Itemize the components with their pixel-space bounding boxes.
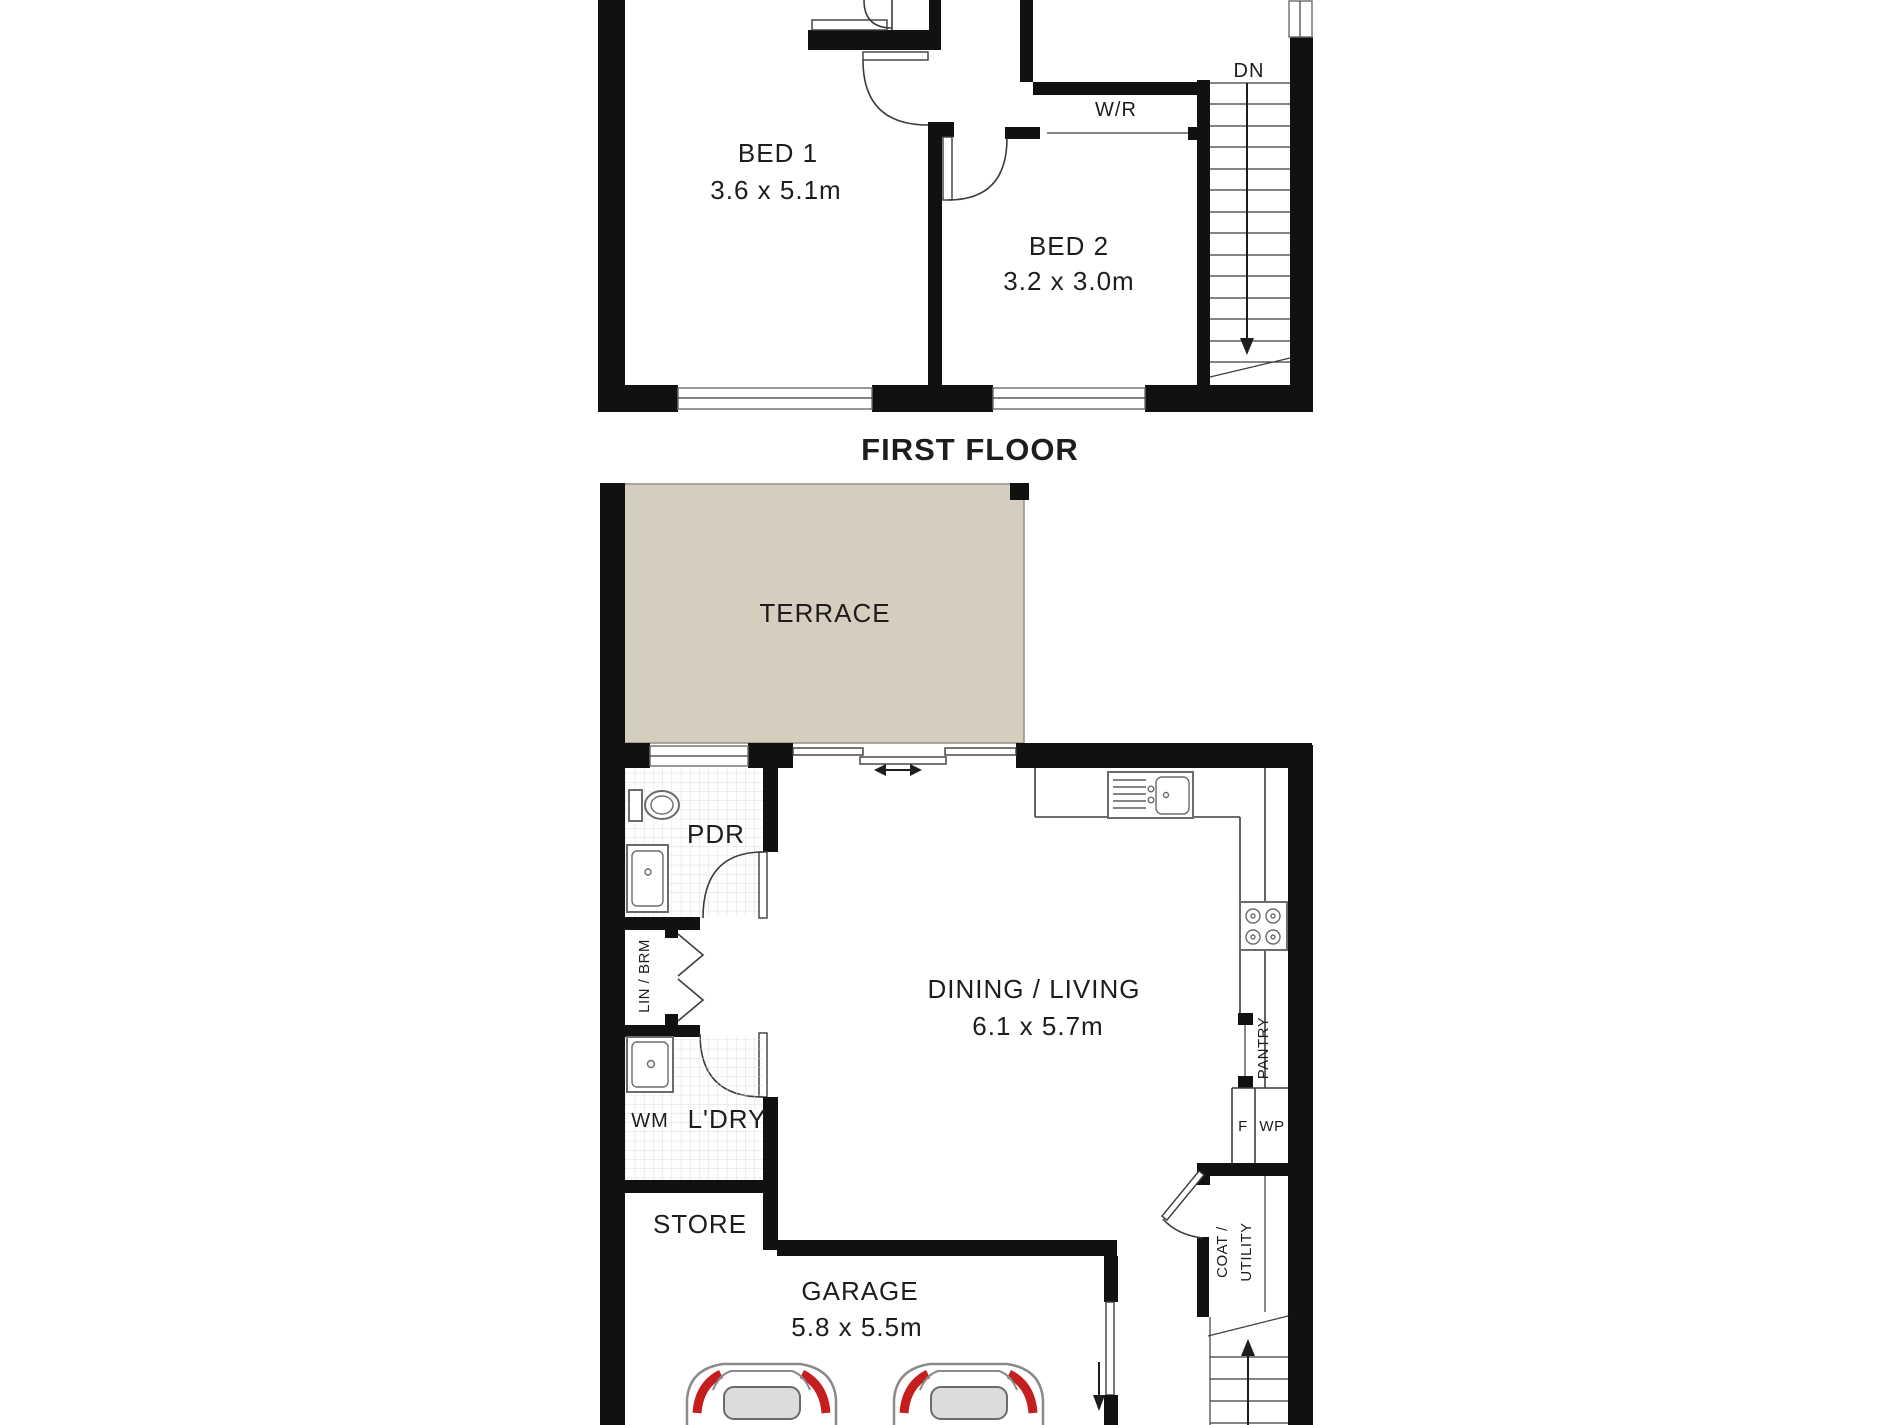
bed1-dims: 3.6 x 5.1m xyxy=(710,175,841,205)
lin-stub-top xyxy=(665,927,678,938)
bed1-door-leaf xyxy=(863,52,928,60)
terrace-bottom-wall-seg1 xyxy=(600,743,650,768)
stairs-up-arrow xyxy=(1241,1339,1255,1425)
pantry-label: PANTRY xyxy=(1255,1017,1272,1079)
gf-left-wall xyxy=(600,483,625,1425)
store-label: STORE xyxy=(653,1209,747,1239)
bed2-dims: 3.2 x 3.0m xyxy=(1003,266,1134,296)
ff-hall-stub xyxy=(1005,127,1040,139)
entry-arrow xyxy=(1093,1362,1105,1411)
ff-bed-divider-wall xyxy=(928,122,942,385)
lin-brm-label: LIN / BRM xyxy=(636,939,653,1013)
terrace-corner-post xyxy=(1010,483,1029,500)
coat-left-wall xyxy=(1197,1237,1209,1317)
bed2-door-leaf xyxy=(943,137,952,200)
stairs-down-arrow xyxy=(1240,83,1254,355)
car-icon xyxy=(894,1364,1043,1425)
pdr-right-wall xyxy=(763,768,778,852)
ff-bottom-wall-seg3 xyxy=(1145,385,1313,412)
bed2-label: BED 2 xyxy=(1029,231,1109,261)
wardrobe-label: W/R xyxy=(1095,99,1137,121)
ff-wr-top-wall xyxy=(1033,82,1200,95)
dining-living-dims: 6.1 x 5.7m xyxy=(972,1011,1103,1041)
window xyxy=(993,388,1145,409)
pantry-stub-top xyxy=(1238,1013,1253,1025)
slide-arrow xyxy=(874,764,922,776)
ff-left-wall xyxy=(598,0,625,412)
ff-bottom-wall-seg1 xyxy=(598,385,678,412)
wm-label: WM xyxy=(631,1110,669,1132)
coat-door-leaf xyxy=(1162,1171,1204,1220)
coat-top-wall xyxy=(1197,1163,1312,1176)
garage-door-wall-upper xyxy=(1104,1256,1118,1302)
car-icon xyxy=(687,1364,836,1425)
bed2-door-arc xyxy=(948,138,1007,200)
ff-right-wall xyxy=(1290,37,1313,412)
garage-top-wall xyxy=(777,1240,1117,1256)
coat-label-line2: UTILITY xyxy=(1238,1222,1255,1281)
lin-stub-bottom xyxy=(665,1014,678,1025)
ground-floor-plan: TERRACE PDR LIN / BRM WM L'DRY STORE GAR… xyxy=(600,483,1313,1425)
stairs-dn-label: DN xyxy=(1234,60,1265,82)
sliding-door xyxy=(793,748,1016,776)
wp-label: WP xyxy=(1259,1118,1284,1135)
pdr-door-leaf xyxy=(759,852,767,918)
washing-machine-icon xyxy=(627,1037,673,1092)
vanity-sink-icon xyxy=(627,845,668,912)
garage-label: GARAGE xyxy=(801,1276,918,1306)
gf-top-wall-right xyxy=(1016,743,1312,768)
ff-top-mid-wall xyxy=(808,30,932,50)
bed1-door-arc xyxy=(863,60,928,125)
fridge-label: F xyxy=(1238,1118,1248,1135)
bifold-door xyxy=(678,934,703,1021)
window xyxy=(678,388,872,409)
toilet-icon xyxy=(629,790,679,821)
terrace-label: TERRACE xyxy=(759,598,890,628)
floorplan-drawing: BED 1 3.6 x 5.1m BED 2 3.2 x 3.0m W/R DN… xyxy=(0,0,1900,1425)
cooktop-icon xyxy=(1240,902,1287,950)
ff-bottom-wall-seg2 xyxy=(872,385,993,412)
kitchen-sink-icon xyxy=(1108,772,1193,818)
ff-stair-wall xyxy=(1197,80,1210,390)
ff-bed-divider-stub xyxy=(928,122,954,137)
gf-right-wall xyxy=(1288,745,1313,1425)
gf-stairs xyxy=(1208,1316,1288,1425)
ff-wr-left-wall xyxy=(1020,0,1033,82)
ff-top-vert-wall xyxy=(929,0,941,50)
terrace-bottom-wall-seg2 xyxy=(748,743,793,768)
garage-dims: 5.8 x 5.5m xyxy=(791,1312,922,1342)
window xyxy=(650,746,748,766)
pantry-stub-bottom xyxy=(1238,1076,1253,1088)
store-right-wall xyxy=(763,1193,778,1250)
ldry-top-wall xyxy=(600,1025,700,1037)
floor-title: FIRST FLOOR xyxy=(861,432,1079,467)
first-floor-plan: BED 1 3.6 x 5.1m BED 2 3.2 x 3.0m W/R DN… xyxy=(598,0,1313,467)
ldry-label: L'DRY xyxy=(688,1104,767,1134)
dining-living-label: DINING / LIVING xyxy=(928,974,1141,1004)
coat-door-arc xyxy=(1163,1219,1203,1238)
garage-door-wall-lower xyxy=(1104,1395,1118,1425)
garage-rear-door xyxy=(1106,1302,1114,1395)
bed1-label: BED 1 xyxy=(738,138,818,168)
pdr-label: PDR xyxy=(687,819,745,849)
coat-label-line1: COAT / xyxy=(1214,1226,1231,1278)
ldry-bottom-wall xyxy=(600,1180,778,1193)
pdr-bottom-wall xyxy=(600,917,700,930)
window xyxy=(1289,1,1312,37)
floorplan-page: BED 1 3.6 x 5.1m BED 2 3.2 x 3.0m W/R DN… xyxy=(0,0,1900,1425)
ff-stairs xyxy=(1210,83,1290,377)
